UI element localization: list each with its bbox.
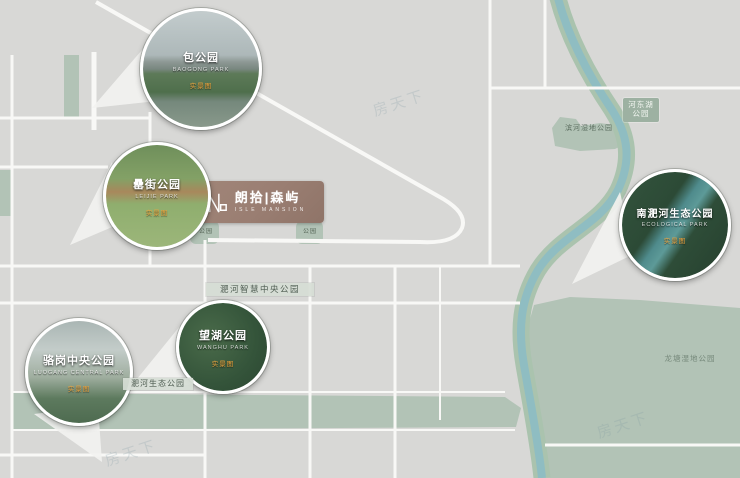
park-name-en: ECOLOGICAL PARK [642, 222, 709, 228]
callout-nanfeihe-park: 南淝河生态公园 ECOLOGICAL PARK 实景图 [619, 169, 731, 281]
label-wetland-park: 滨河湿地公园 [551, 124, 627, 134]
photo-tag: 实景图 [190, 80, 213, 90]
park-name: 骆岗中央公园 [43, 352, 115, 368]
photo-tag: 实景图 [212, 358, 235, 368]
longtang-green-area [524, 297, 740, 478]
callout-luogang-park: 骆岗中央公园 LUOGANG CENTRAL PARK 实景图 [25, 318, 133, 426]
photo-tag: 实景图 [146, 207, 169, 217]
park-name-en: LUOGANG CENTRAL PARK [34, 370, 125, 376]
park-name: 南淝河生态公园 [637, 205, 714, 220]
label-feihe-smart-central-park: 淝河智慧中央公园 [206, 283, 314, 296]
label-longtang-wetland-park: 龙塘湿地公园 [652, 354, 728, 364]
photo-tag: 实景图 [68, 383, 91, 393]
label-park-blob-b: 公园 [296, 226, 324, 235]
park-name: 包公园 [183, 49, 219, 65]
park-name: 望湖公园 [199, 327, 247, 343]
location-map: 朗拾|森屿 ISLE MANSION 包公园 BAOGONG PARK 实景图 … [0, 0, 740, 478]
callout-baogongyuan: 包公园 BAOGONG PARK 实景图 [140, 8, 262, 130]
project-name-en: ISLE MANSION [235, 208, 307, 213]
label-hedonghu-park: 河东湖 公园 [623, 98, 659, 122]
label-feihe-eco-park: 淝河生态公园 [123, 378, 193, 390]
park-name: 罍街公园 [133, 176, 181, 192]
label-hedonghu-line2: 公园 [633, 110, 650, 119]
photo-tag: 实景图 [664, 235, 687, 245]
park-block-strip [64, 55, 79, 117]
park-name-en: WANGHU PARK [197, 345, 249, 351]
park-name-en: BAOGONG PARK [173, 67, 230, 73]
park-block-left-edge [0, 170, 12, 216]
park-name-en: LEIJIE PARK [135, 194, 178, 200]
label-park-blob-a: 公园 [192, 226, 220, 235]
project-name: 朗拾|森屿 [235, 191, 301, 204]
